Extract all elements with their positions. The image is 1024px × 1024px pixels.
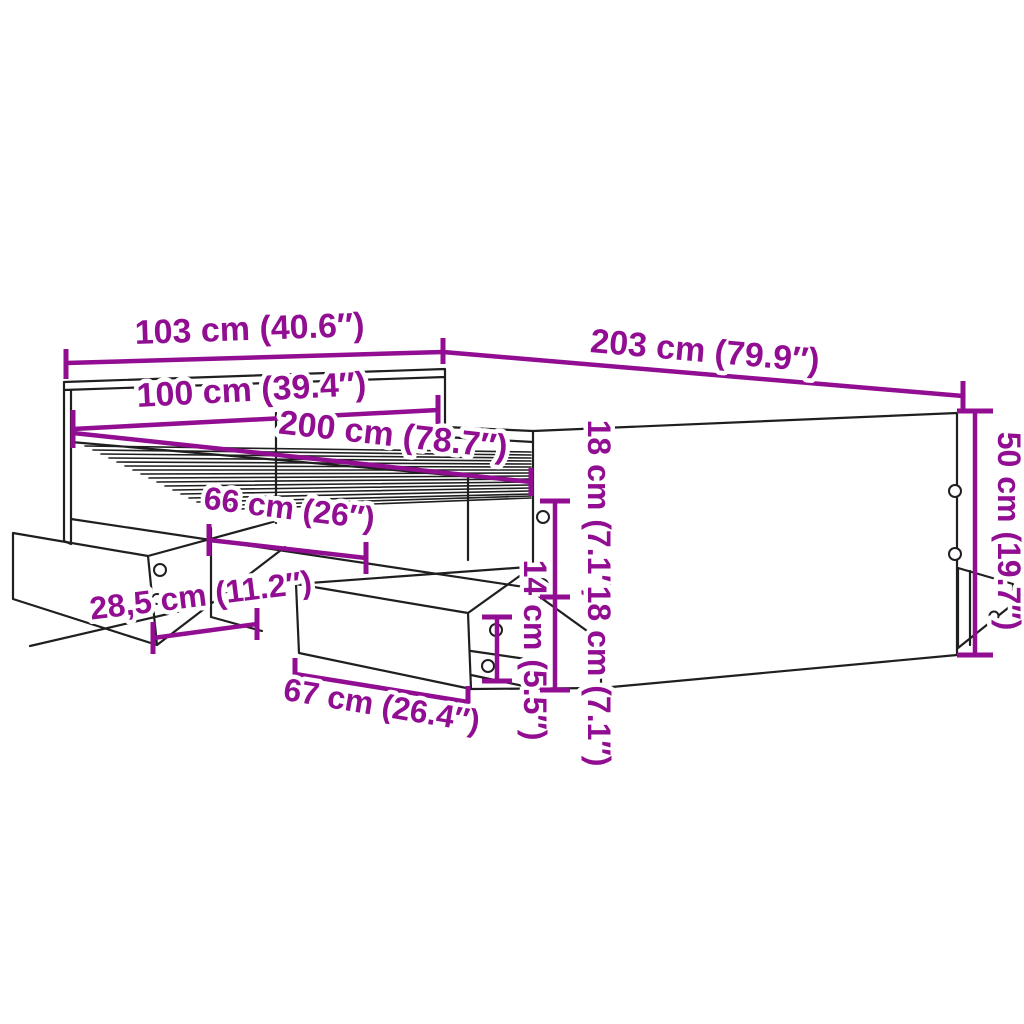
dim-label-drawer-front-height: 14 cm (5.5″) <box>517 560 553 741</box>
dim-label-overall-length: 203 cm (79.9″) <box>589 322 821 380</box>
dim-overall-width: 103 cm (40.6″) <box>66 306 443 379</box>
dim-label-overall-width: 103 cm (40.6″) <box>134 306 365 352</box>
dimension-annotations: 103 cm (40.6″) 203 cm (79.9″) 100 cm (39… <box>66 306 1024 766</box>
dim-label-drawer-extension: 28,5 cm (11.2″) <box>88 564 314 627</box>
dim-label-rail-height-lower: 18 cm (7.1″) <box>581 586 617 767</box>
dim-label-end-panel-height: 50 cm (19.7″) <box>991 432 1024 631</box>
dim-drawer-front-height: 14 cm (5.5″) <box>482 560 553 741</box>
bed-frame-dimension-diagram: 103 cm (40.6″) 203 cm (79.9″) 100 cm (39… <box>0 0 1024 1024</box>
dim-label-rail-height-upper: 18 cm (7.1″) <box>581 420 617 601</box>
dim-label-inner-width: 100 cm (39.4″) <box>136 365 368 415</box>
dim-drawer-extension: 28,5 cm (11.2″) <box>88 564 314 654</box>
dim-overall-length: 203 cm (79.9″) <box>443 322 963 411</box>
dim-label-drawer-front-width: 67 cm (26.4″) <box>281 671 483 739</box>
bed-frame-line-art <box>13 369 1013 689</box>
